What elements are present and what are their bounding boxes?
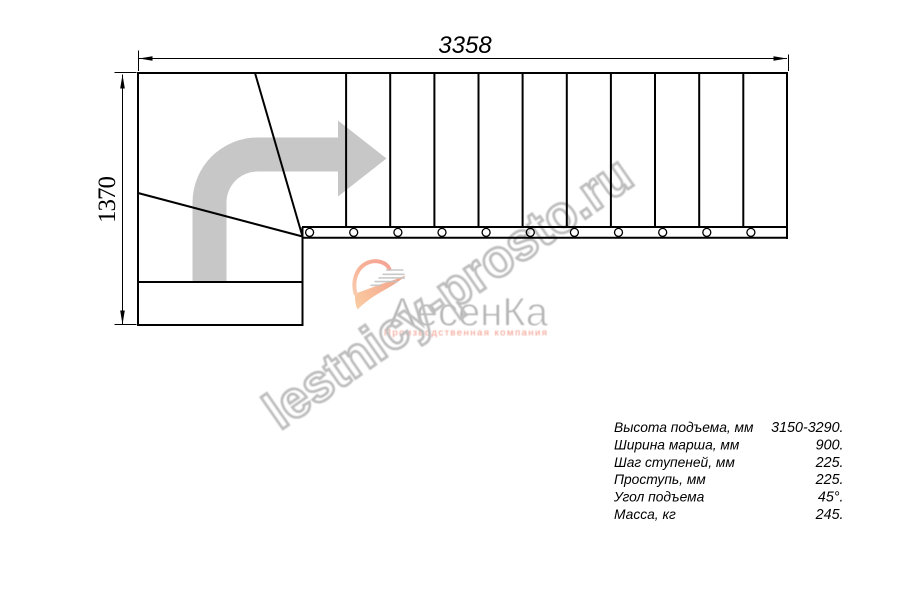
svg-text:3358: 3358: [438, 32, 492, 59]
svg-text:Угол подъема: Угол подъема: [613, 490, 705, 505]
svg-text:45°.: 45°.: [818, 490, 844, 506]
svg-text:Высота подъема, мм: Высота подъема, мм: [614, 420, 754, 435]
svg-text:900.: 900.: [816, 438, 844, 454]
svg-text:3150-3290.: 3150-3290.: [771, 420, 843, 436]
svg-text:225.: 225.: [815, 472, 844, 488]
svg-text:Проступь, мм: Проступь, мм: [614, 472, 706, 487]
svg-text:Масса, кг: Масса, кг: [614, 507, 676, 522]
svg-text:Шаг ступеней, мм: Шаг ступеней, мм: [614, 455, 735, 470]
svg-text:225.: 225.: [815, 455, 844, 471]
svg-text:245.: 245.: [815, 507, 844, 523]
svg-text:1370: 1370: [94, 176, 121, 223]
svg-text:Ширина марша, мм: Ширина марша, мм: [614, 438, 740, 453]
